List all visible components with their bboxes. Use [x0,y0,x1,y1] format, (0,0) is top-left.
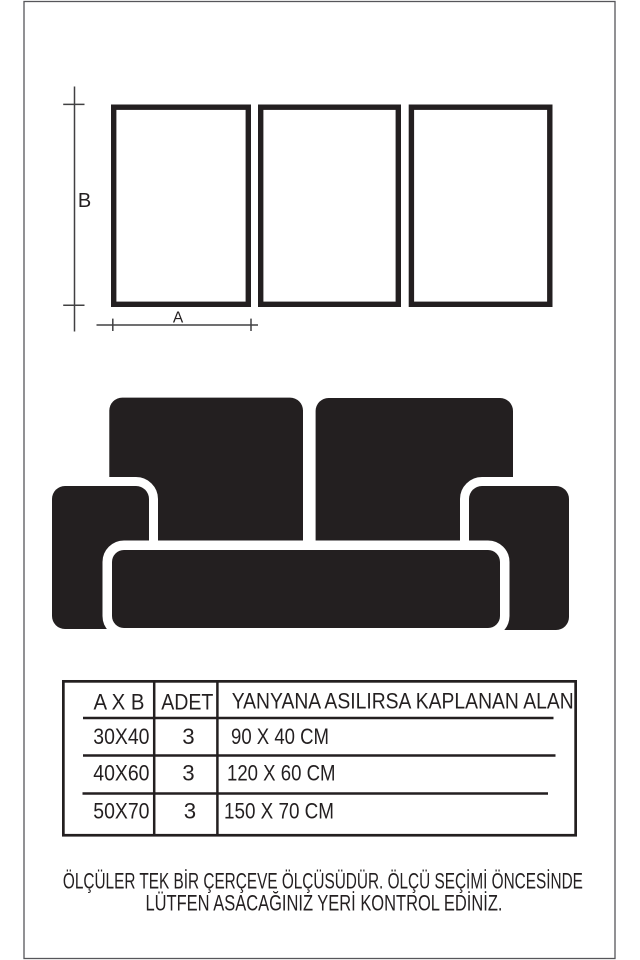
svg-text:ADET: ADET [161,690,214,715]
svg-text:B: B [78,190,91,212]
svg-text:30X40: 30X40 [93,724,149,749]
svg-text:40X60: 40X60 [93,761,149,786]
svg-text:3: 3 [184,799,196,824]
svg-text:3: 3 [182,724,194,749]
svg-text:A X B: A X B [94,690,145,715]
svg-text:90 X 40 CM: 90 X 40 CM [231,724,329,749]
svg-text:120 X 60 CM: 120 X 60 CM [227,761,336,786]
svg-text:50X70: 50X70 [93,799,149,824]
svg-text:150 X 70 CM: 150 X 70 CM [224,799,334,824]
svg-text:LÜTFEN ASACAĞINIZ YERİ KONTROL: LÜTFEN ASACAĞINIZ YERİ KONTROL EDİNİZ. [146,891,503,916]
svg-text:3: 3 [182,761,194,786]
svg-text:YANYANA ASILIRSA KAPLANAN ALAN: YANYANA ASILIRSA KAPLANAN ALAN [232,689,574,714]
svg-text:A: A [173,310,184,327]
